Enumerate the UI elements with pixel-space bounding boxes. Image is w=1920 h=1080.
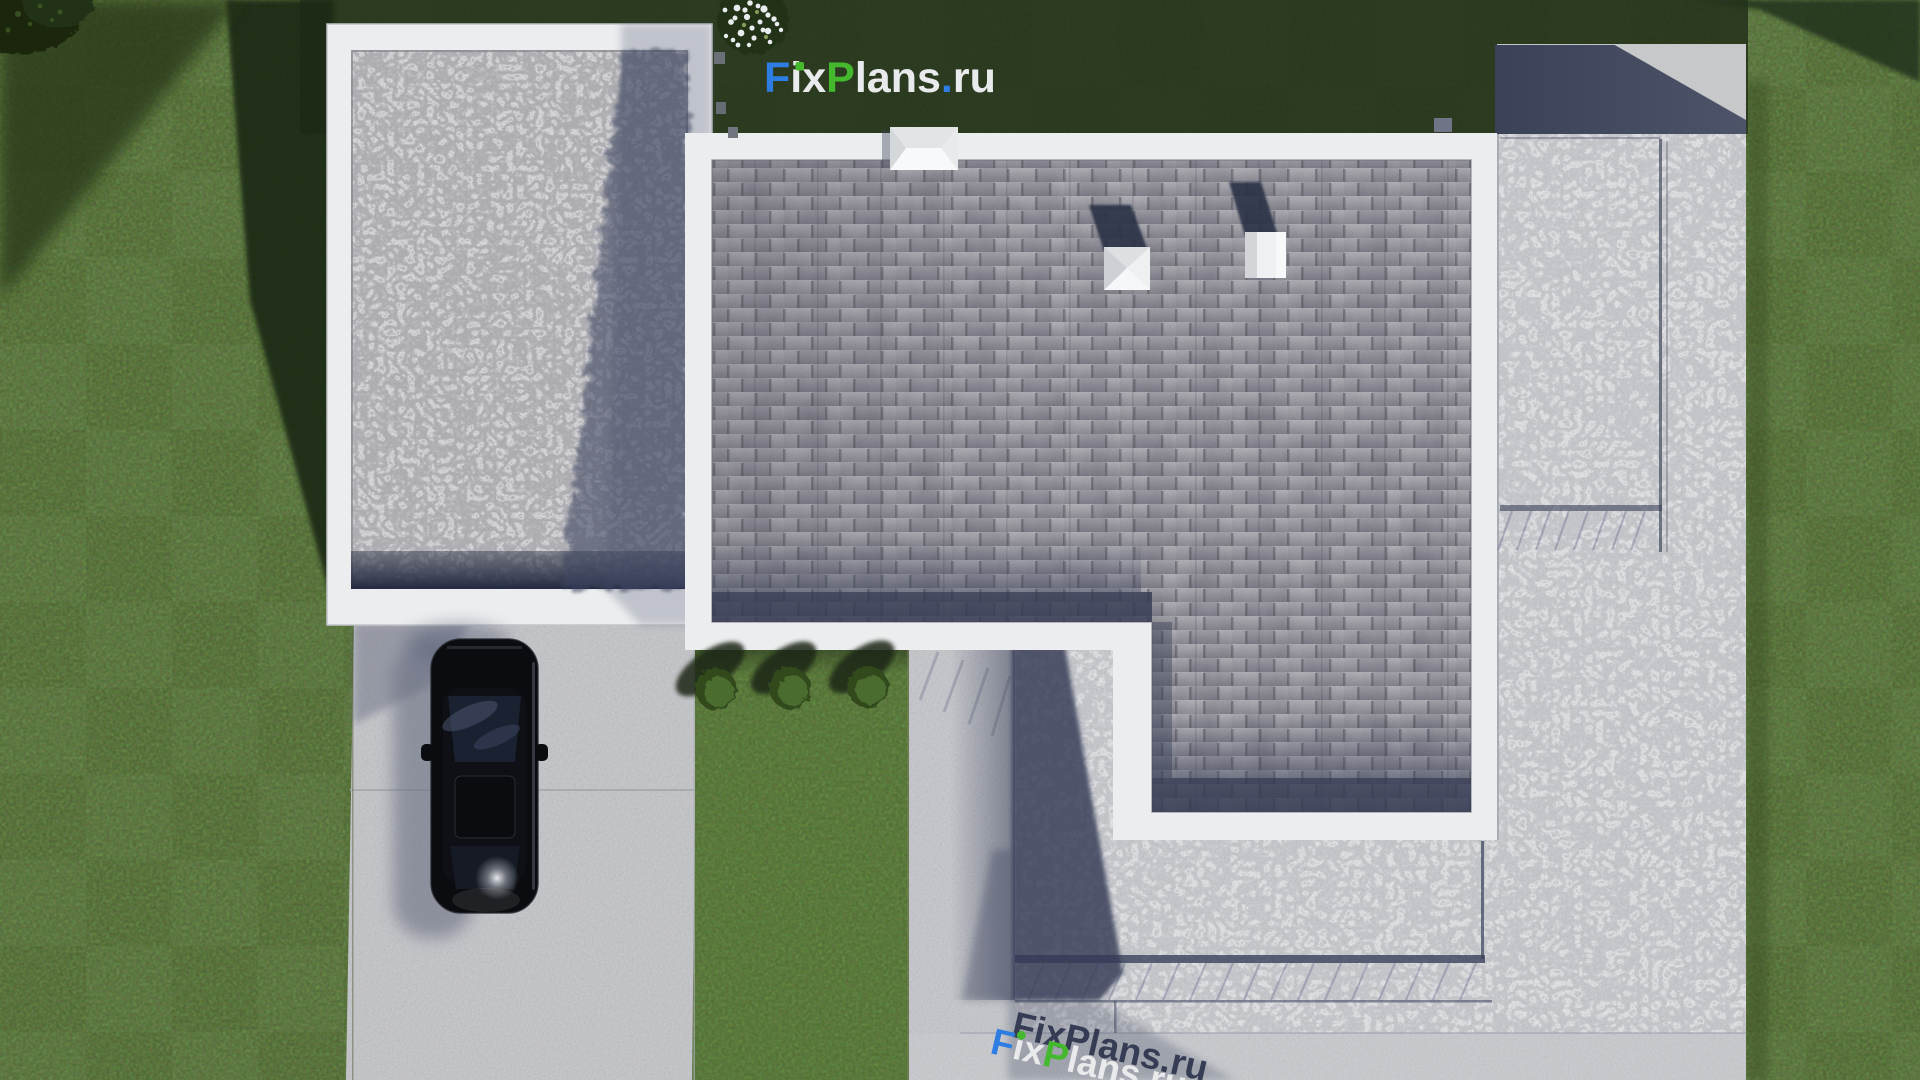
- svg-text:FixPlans.ru: FixPlans.ru: [764, 54, 996, 102]
